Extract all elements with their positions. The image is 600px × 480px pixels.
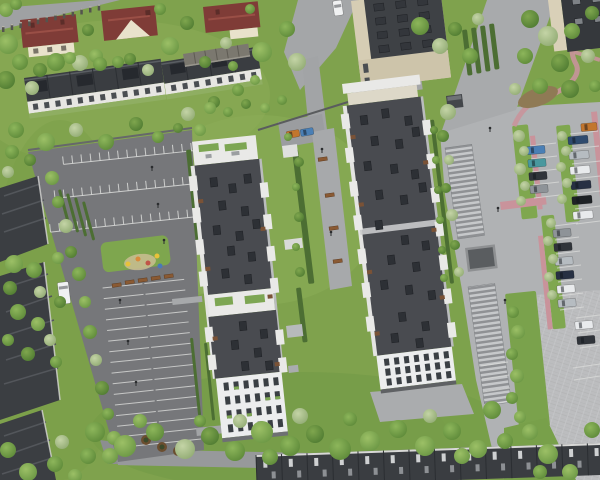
tree [415,436,435,456]
roof-vent [381,109,389,119]
play-equipment [158,264,163,269]
roof-vent [428,290,436,300]
tree [538,26,558,46]
play-equipment [155,254,160,259]
car-windshield [561,286,565,292]
chimney [30,23,35,28]
tree [519,146,529,156]
car-windshield [573,152,577,158]
tree [581,49,595,63]
roof-vent [375,17,386,25]
tree [26,262,42,278]
house-red-2 [101,5,158,40]
window [394,357,400,365]
window [217,77,223,84]
tree [233,414,247,428]
tree [443,422,461,440]
tree [288,53,306,71]
roof-window [577,461,581,468]
tree [47,456,63,472]
tree [59,219,73,233]
roof-vent [574,18,583,25]
tree [532,78,548,94]
tree [516,196,526,206]
car-windshield [559,258,563,264]
roof-vent [379,45,390,53]
window [406,376,412,384]
window [228,75,234,82]
tree [93,57,107,71]
tree [538,444,558,464]
tree [2,334,14,346]
tree [24,154,36,166]
tree [201,427,219,445]
window [171,84,177,91]
tree [223,107,233,117]
fence-post-cap [19,22,22,23]
car [553,228,572,238]
tree [511,325,525,339]
tree [232,84,244,96]
car-windshield [579,322,583,328]
roof-vent [398,312,406,322]
tree [5,255,23,273]
tree [543,236,553,246]
tree [517,48,533,64]
roof-vent [248,252,256,262]
car [581,122,598,131]
tree [199,56,211,68]
window [228,424,234,432]
car [556,270,575,280]
lamp-head [497,207,500,210]
tree [329,438,351,460]
tree [220,37,232,49]
tree [65,246,77,258]
tree [279,21,295,37]
car-windshield [575,182,579,188]
car-windshield [576,197,580,203]
car-windshield [577,212,581,218]
roof-vent [371,136,379,146]
window [445,361,451,369]
tree [50,356,62,368]
window [205,79,211,86]
window [243,380,249,388]
tree [55,435,69,449]
tree [292,243,300,251]
tree [585,6,599,20]
roof-vent [231,340,239,350]
aerial-render [0,0,600,480]
roof-vent [375,190,383,200]
fence-post-cap [98,5,101,6]
balcony-plant [247,413,252,417]
roof-vent [244,174,252,184]
tree [562,178,572,188]
tree [102,408,114,420]
roof-vent [210,177,218,187]
tree [12,54,28,70]
tree [546,218,556,228]
tree [245,4,255,14]
car [577,335,596,345]
roof-window [391,455,395,463]
tree [0,442,16,458]
play-equipment [126,262,131,267]
window [55,100,61,107]
tree [262,449,278,465]
lamp-head [321,148,324,151]
tree [280,436,300,456]
window [182,83,188,90]
tree [45,171,59,185]
roof-vent [416,338,424,348]
roof-vent [375,220,383,230]
tree [306,425,324,443]
tree [533,465,547,479]
roof-vent [241,361,249,371]
window [89,95,95,102]
tree [295,267,305,277]
roof-vent [417,0,428,6]
tree [52,196,64,208]
tree [411,17,429,35]
roof-vent [395,0,406,8]
tree [54,296,66,308]
window [386,378,392,386]
lamp-head [151,166,154,169]
roof-window [399,467,403,474]
roof-vent [401,42,412,50]
window [66,99,72,106]
roof-window [501,463,505,470]
tree [522,424,538,440]
chimney [215,9,220,14]
window [77,97,83,104]
tree [292,183,300,191]
car [570,165,591,175]
tree [10,304,26,320]
window [436,372,442,380]
car [575,320,594,330]
roof-vent [221,269,229,279]
pergola [286,324,303,338]
tree [483,401,501,419]
car-windshield [558,244,562,250]
car-windshield [531,147,535,153]
window [273,377,279,385]
window [33,103,39,110]
window [277,419,283,427]
fence-post-cap [89,7,92,8]
planter-plant [144,438,149,443]
roof-vent [397,14,408,22]
roof-vent [391,333,399,343]
fence-post-cap [28,20,31,21]
tree [432,156,440,164]
tree [506,392,518,404]
car-windshield [533,173,537,179]
tree [95,381,109,395]
pergola [282,144,298,158]
roof-vent [390,164,398,174]
car [569,150,590,160]
play-equipment [136,257,141,262]
tree [360,431,380,451]
window [133,89,139,96]
balcony-plant [227,415,232,419]
roof-vent [422,39,433,47]
roof-vent [412,127,420,137]
fence-post-cap [2,26,5,27]
tree [430,126,438,134]
roof-vent [422,241,430,251]
car [333,0,344,16]
terrace-furniture [205,154,211,159]
tree [251,421,273,443]
fence-post-cap [63,12,66,13]
roof-window [475,464,479,471]
tree [547,290,557,300]
tree [102,448,118,464]
car-windshield [581,337,585,343]
roof-window [518,451,522,459]
tree [83,325,97,339]
tree [509,83,521,95]
tree [64,52,76,64]
roof-vent [229,183,237,193]
tree [31,317,45,331]
tree [25,81,39,95]
fence-post-cap [80,8,83,9]
tree [513,130,525,142]
window [424,353,430,361]
roof-window [348,469,352,476]
roof-window [272,471,276,478]
window [396,377,402,385]
window [111,92,117,99]
tree [80,448,96,464]
window [47,47,52,52]
tree [520,181,530,191]
roof-vent [218,201,226,211]
roof-vent [260,329,268,339]
tree [142,64,154,76]
tree [561,146,571,156]
tree [548,254,558,264]
tree [8,122,24,138]
tree [241,99,251,109]
tree [564,23,580,39]
tree [3,281,17,295]
window [33,48,38,53]
window [256,407,262,415]
roof-vent [265,361,273,371]
lamp-head [127,340,130,343]
window [446,371,452,379]
window [100,94,106,101]
window [433,352,439,360]
window [240,74,246,81]
roof-vent [572,0,581,5]
tree [389,420,407,438]
roof-vent [419,183,427,193]
tree [423,409,437,423]
window [416,375,422,383]
car-windshield [534,186,538,192]
roof-vent [241,206,249,216]
tree [446,209,458,221]
roof-window [594,448,598,456]
tree [250,75,260,85]
tree [33,63,47,77]
car-windshield [560,272,564,278]
car [529,171,548,181]
car-windshield [532,160,536,166]
lamp-head [119,299,122,302]
tree [129,117,143,131]
tree [204,102,216,114]
roof-vent [236,231,244,241]
car-windshield [557,230,561,236]
tree [194,415,206,427]
tree [472,13,484,25]
roof-window [493,452,497,460]
tree [510,369,524,383]
tree [72,267,86,281]
roof-vent [244,274,252,284]
tree [47,53,65,71]
roof-window [289,459,293,467]
roof-window [526,462,530,469]
roof-vent [239,321,247,331]
window [415,365,421,373]
roof-vent [252,219,260,229]
tree [557,131,567,141]
window [266,406,272,414]
tree [260,103,270,113]
fence-post-cap [11,24,14,25]
car [528,158,547,168]
roof-window [416,454,420,462]
tree [5,145,19,159]
tree [37,133,55,151]
tree [124,53,136,65]
tree [450,240,460,250]
tree [225,441,245,461]
lamp-head [163,239,166,242]
tree [444,155,454,165]
chimney [60,19,65,24]
roof-vent [400,195,408,205]
window [255,393,261,401]
roof-vent [377,31,388,39]
tree [82,24,94,36]
car [554,242,573,252]
tree [440,274,448,282]
roof-vent [399,28,410,36]
tree [469,440,487,458]
car-windshield [572,137,576,143]
roof-vent [374,3,385,11]
fence-post-cap [37,18,40,19]
tree [454,448,470,464]
tree [521,10,539,28]
tree [161,37,179,55]
car-windshield [574,167,578,173]
tree [497,433,513,449]
car-windshield [584,124,588,130]
tree [448,22,462,36]
fence-post-cap [46,16,49,17]
tree [551,54,569,72]
roof-window [569,449,573,457]
tree [194,124,206,136]
window [384,358,390,366]
tree [343,412,357,426]
tree [440,104,456,120]
roof-window [424,466,428,473]
tree [562,464,578,480]
tree [69,123,83,137]
car [530,184,549,194]
tree [438,246,446,254]
lamp-head [489,127,492,130]
lamp-head [330,231,333,234]
roof-window [374,468,378,475]
window [426,373,432,381]
lamp-head [504,299,507,302]
tree [228,61,238,71]
car [568,135,589,145]
tree [98,134,114,150]
tree [294,212,304,222]
window [194,81,200,88]
window [425,363,431,371]
tree [146,423,164,441]
roof-vent [401,235,409,245]
window [253,379,259,387]
solar-panel [122,67,139,80]
car [571,180,592,190]
roof-window [323,470,327,477]
tree [441,183,451,193]
tree [21,347,35,361]
tree [79,296,91,308]
car [558,298,577,308]
tree [514,411,526,423]
tree [284,133,292,141]
tree [277,95,287,105]
window [443,351,449,359]
tree [44,334,56,346]
window [245,394,251,402]
car [527,145,546,155]
tree [514,163,526,175]
tree [34,286,46,298]
tree [557,194,567,204]
roof-vent [411,169,419,179]
roof-vent [422,321,430,331]
tree [436,216,444,224]
tree [133,414,147,428]
roof-vent [412,262,420,272]
window [145,88,151,95]
window [263,378,269,386]
lamp-head [157,203,160,206]
tree [85,422,105,442]
